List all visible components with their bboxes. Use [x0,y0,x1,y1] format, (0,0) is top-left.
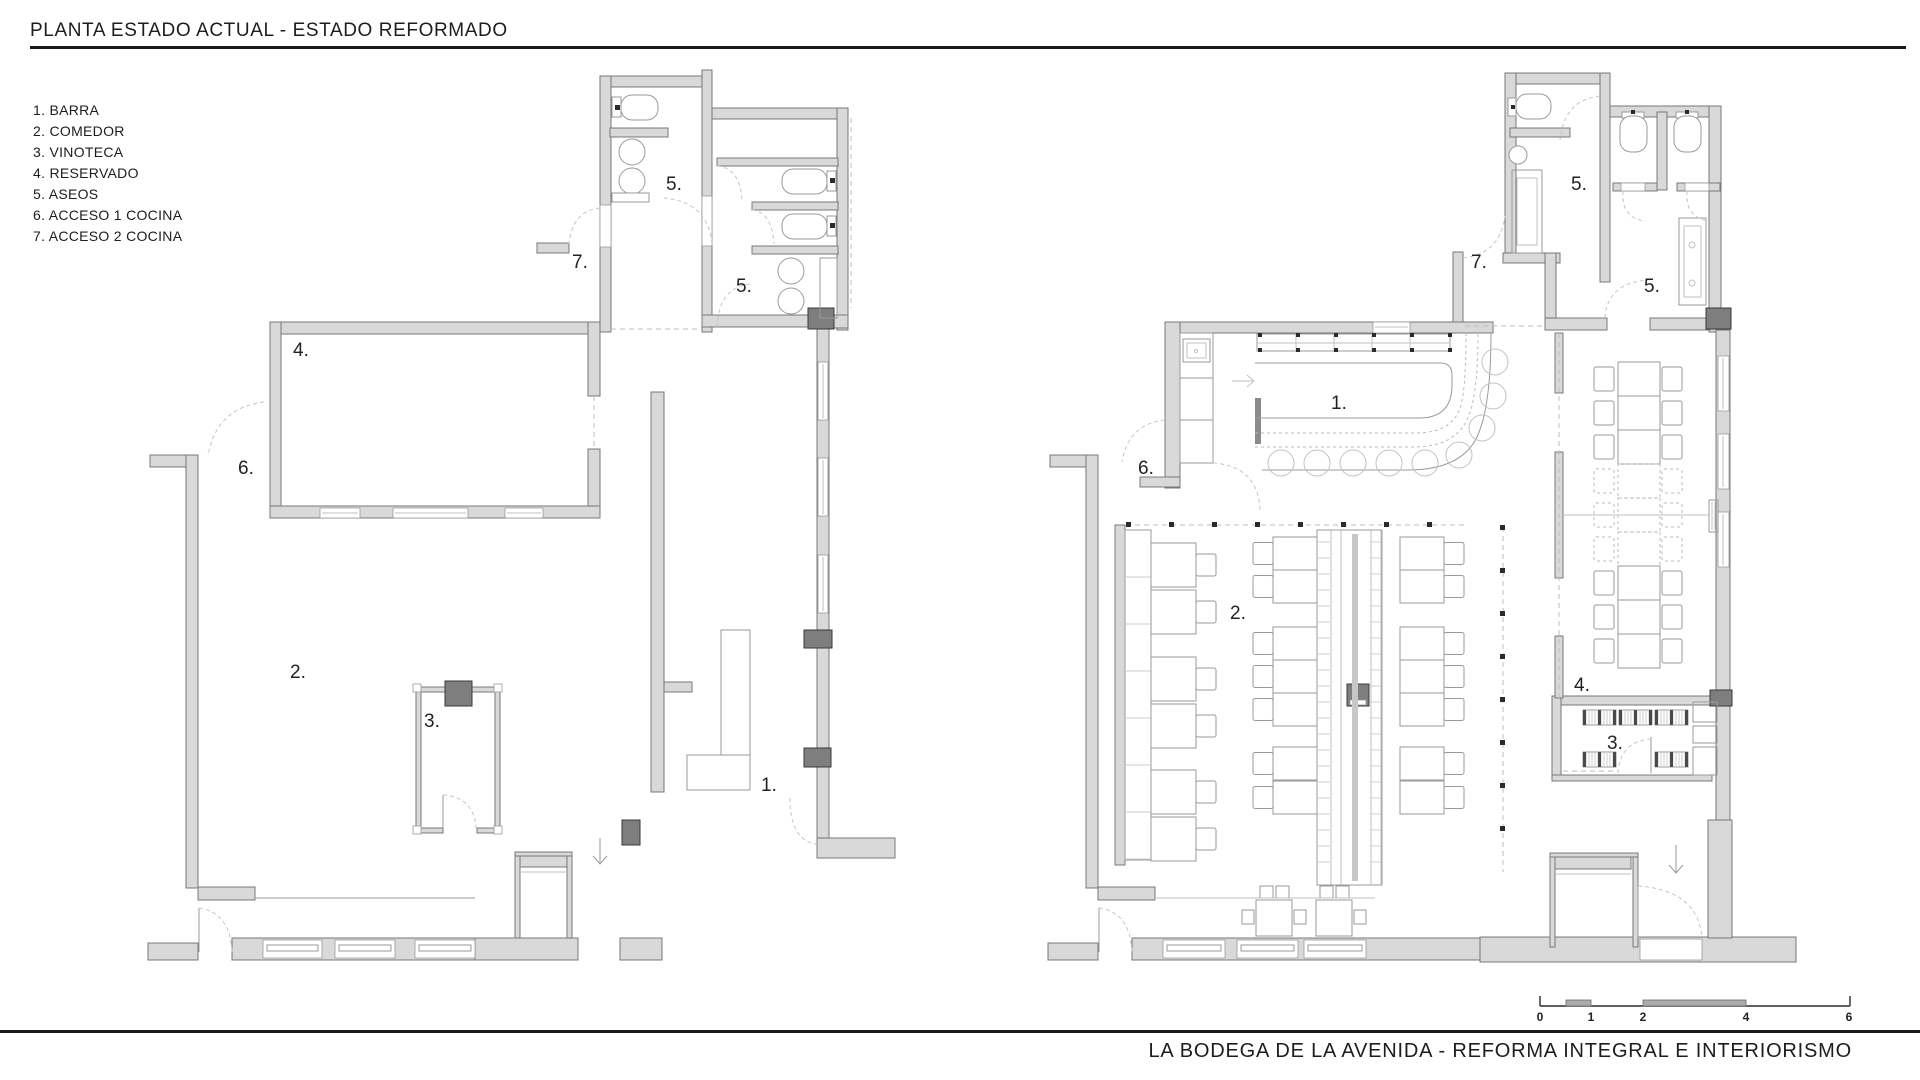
four-top-tables [1242,886,1366,936]
label-aseos: 5. [666,174,682,195]
bar-front [1262,334,1491,470]
table [1400,570,1444,603]
bar-counter [687,755,750,790]
bar-counter [721,630,750,757]
door-arc [1213,463,1260,510]
scale-tick-6: 6 [1846,1010,1853,1024]
chair [1444,699,1464,721]
wc-icon [1508,94,1551,119]
chair [1253,576,1273,598]
chair [1260,886,1273,898]
table [1400,660,1444,693]
service-arrow [1232,375,1254,387]
chair [1196,601,1216,623]
table [1151,817,1196,861]
table [1618,566,1660,600]
chair [1196,715,1216,737]
entrance-arrow [593,838,607,864]
bar-stool-icon [1268,450,1294,476]
chair [1662,401,1682,425]
drawing-sheet: PLANTA ESTADO ACTUAL - ESTADO REFORMADO … [0,0,1920,1080]
entrance-vestibule [1550,845,1702,947]
table [1151,770,1196,814]
door-arc [790,798,816,844]
room-vinoteca-reformado [1563,702,1717,775]
wc-icon [1620,110,1647,152]
scale-bar: 0 1 2 4 6 [1537,996,1853,1024]
door-arc [752,210,774,244]
table [1273,660,1317,693]
pillar [1706,308,1731,329]
vanity-shelf [612,193,649,202]
label-acceso-2: 7. [572,252,588,273]
table [1400,537,1444,570]
door-arc [1605,280,1648,318]
door-arc [1687,191,1709,221]
chair [1253,666,1273,688]
chair [1594,639,1614,663]
label-aseos: 5. [1644,276,1660,297]
entrance-arrow [1669,845,1683,873]
label-barra: 1. [1331,393,1347,414]
center-spine [1317,530,1382,885]
chair [1594,435,1614,459]
chair [1662,571,1682,595]
table [1316,900,1352,936]
label-barra: 1. [761,775,777,796]
sink-icon [778,258,804,284]
scale-tick-0: 0 [1537,1010,1544,1024]
walls [1048,73,1796,962]
footer-rule [0,1030,1920,1033]
table [1618,532,1660,566]
table [1618,396,1660,430]
label-aseos: 5. [736,276,752,297]
bar-stool-icon [1480,383,1506,409]
label-reservado: 4. [1574,675,1590,696]
kitchen-access [1180,333,1261,463]
table [1273,781,1317,814]
chair [1662,469,1682,493]
table [1618,430,1660,464]
door-arc [1122,420,1165,462]
door-arc [208,402,264,456]
chair [1444,666,1464,688]
scale-tick-2: 2 [1640,1010,1647,1024]
door-arc [199,908,232,952]
table [1273,570,1317,603]
room-number-labels: 4. 6. 7. 5. 5. 2. 3. 1. [238,174,777,796]
chair [1662,537,1682,561]
pillar [804,748,831,767]
table [1151,543,1196,587]
table [1618,362,1660,396]
bar-stool-icon [1340,450,1366,476]
bar-stool-icon [1469,415,1495,441]
chair [1196,554,1216,576]
chair [1594,605,1614,629]
chair [1594,401,1614,425]
cabinet [1693,726,1717,743]
door-arc [1099,908,1132,952]
chair [1662,367,1682,391]
chair [1662,435,1682,459]
bench-wall [1115,525,1125,865]
wc-icon [782,214,836,239]
pillar [445,681,472,706]
pillar [622,820,640,845]
label-acceso-2: 7. [1471,252,1487,273]
room-number-labels: 7. 5. 5. 1. 6. 2. 4. 3. [1138,174,1660,754]
label-acceso-1: 6. [238,458,254,479]
bar-counter [1255,363,1452,418]
wine-racks [1583,710,1688,767]
table-row-center-right [1400,537,1464,814]
table [1151,590,1196,634]
chair [1444,787,1464,809]
chair [1444,633,1464,655]
doors-and-dashes [199,118,851,952]
table [1151,657,1196,701]
label-vinoteca: 3. [424,711,440,732]
chair [1444,753,1464,775]
room-reservado-reformado [1559,333,1718,698]
door-arc [443,795,476,828]
pillars [1347,308,1732,706]
cabinet [1693,747,1717,775]
entrance-vestibule [515,838,607,938]
wc-icon [1674,110,1701,152]
label-aseos: 5. [1571,174,1587,195]
label-acceso-1: 6. [1138,458,1154,479]
door-arc [1638,886,1702,938]
chair [1662,639,1682,663]
chair [1594,537,1614,561]
table [1273,627,1317,660]
chair [1253,753,1273,775]
table [1618,600,1660,634]
wc-icon [782,169,836,194]
sink-icon [1509,146,1527,164]
chair [1594,469,1614,493]
chair [1196,668,1216,690]
project-title: LA BODEGA DE LA AVENIDA - REFORMA INTEGR… [1148,1040,1852,1063]
bar-stool-icon [1412,450,1438,476]
scale-tick-1: 1 [1588,1010,1595,1024]
chair [1444,543,1464,565]
door-arc [1623,191,1645,221]
bar-stool-icon [1446,442,1472,468]
chair [1196,781,1216,803]
label-comedor: 2. [1230,603,1246,624]
chair [1354,910,1366,924]
sink-icon [778,288,804,314]
label-vinoteca: 3. [1607,733,1623,754]
bench [1125,530,1151,860]
table [1618,464,1660,498]
chair [1253,787,1273,809]
bar-stool-icon [1304,450,1330,476]
pillar [804,630,832,648]
table [1273,747,1317,780]
table-row-left [1151,543,1216,861]
table [1400,693,1444,726]
chair [1196,828,1216,850]
table [1400,781,1444,814]
chair [1662,605,1682,629]
label-comedor: 2. [290,662,306,683]
table [1400,627,1444,660]
bar-stool-icon [1482,349,1508,375]
bar-zone-actual [687,630,750,790]
chair [1336,886,1349,898]
bar-stools [1268,349,1508,476]
wall-openings [263,196,828,958]
wc-icon [612,95,658,120]
plan-estado-reformado: 7. 5. 5. 1. 6. 2. 4. 3. [1048,73,1796,962]
chair [1294,910,1306,924]
chair [1594,571,1614,595]
vanity-counter [1679,218,1706,305]
door-arc [717,166,742,200]
table [1273,537,1317,570]
chair [1253,699,1273,721]
chair [1276,886,1289,898]
table [1273,693,1317,726]
chair [1320,886,1333,898]
chair [1253,543,1273,565]
door-leaf [1255,398,1261,444]
label-reservado: 4. [293,340,309,361]
table [1618,634,1660,668]
table-row-center-left [1253,537,1317,814]
bar-reformado [1255,334,1508,476]
door-arc [569,208,600,244]
sink-icon [619,168,645,194]
room-vinoteca-actual [413,681,502,834]
sink-icon [619,139,645,165]
floor-plan-drawing: 4. 6. 7. 5. 5. 2. 3. 1. [0,0,1920,1080]
table [1256,900,1292,936]
chair [1444,576,1464,598]
bench-divisions [1125,577,1151,859]
pillar [1710,690,1732,706]
chair [1253,633,1273,655]
table [1151,704,1196,748]
scale-tick-4: 4 [1743,1010,1750,1024]
table [1400,747,1444,780]
vanity-basin [1517,178,1537,245]
chair [1242,910,1254,924]
chair [1594,367,1614,391]
plan-estado-actual: 4. 6. 7. 5. 5. 2. 3. 1. [148,70,895,960]
wall-openings [1163,183,1729,960]
bar-stool-icon [1376,450,1402,476]
